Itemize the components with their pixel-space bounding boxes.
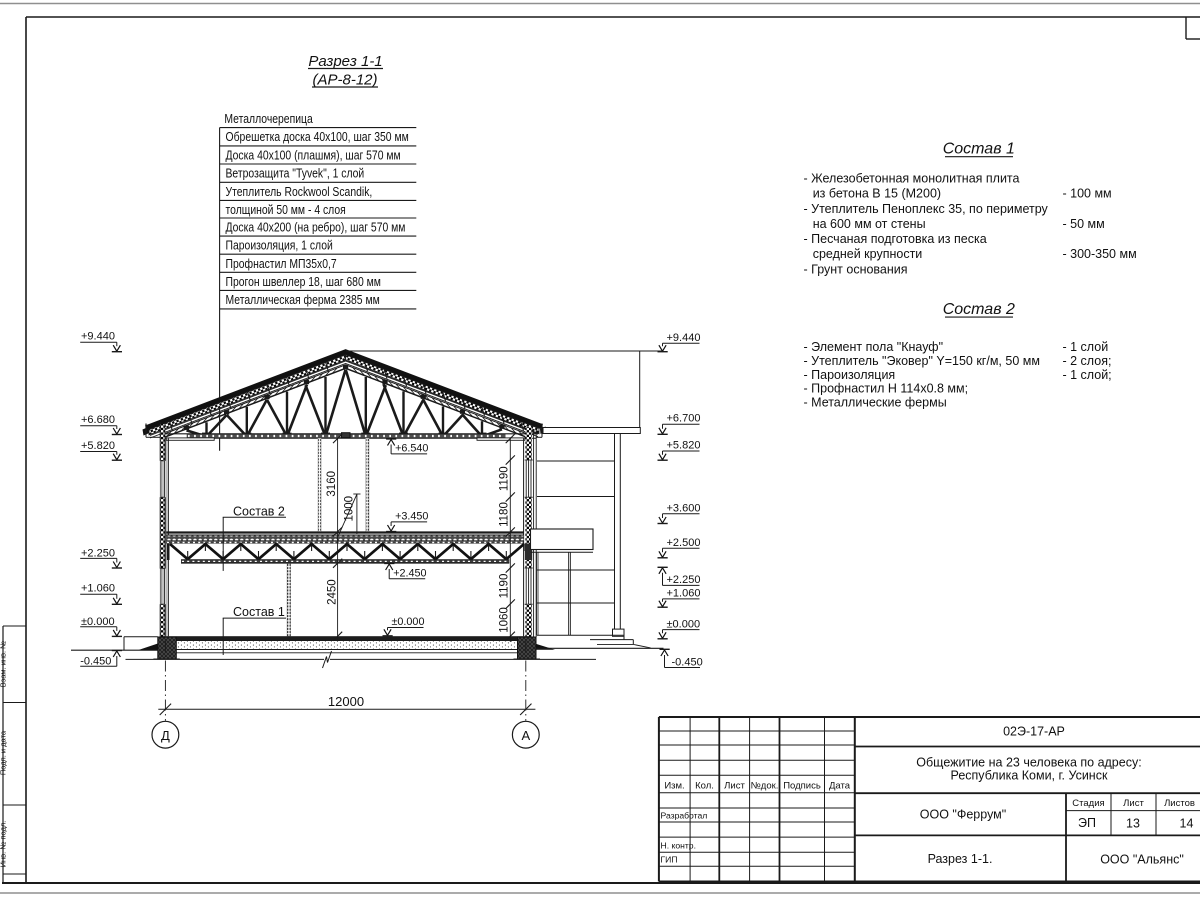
svg-text:Обрешетка доска 40х100, шаг 35: Обрешетка доска 40х100, шаг 350 мм bbox=[226, 130, 409, 144]
svg-text:- Утеплитель "Эковер" Y=150 кг: - Утеплитель "Эковер" Y=150 кг/м, 50 мм bbox=[804, 354, 1040, 368]
svg-text:1000: 1000 bbox=[344, 496, 356, 522]
svg-text:+3.600: +3.600 bbox=[667, 503, 701, 515]
svg-text:±0.000: ±0.000 bbox=[392, 616, 425, 628]
svg-text:ЭП: ЭП bbox=[1078, 816, 1096, 830]
svg-text:+6.680: +6.680 bbox=[81, 414, 115, 426]
svg-text:+1.060: +1.060 bbox=[81, 582, 115, 594]
svg-text:+5.820: +5.820 bbox=[667, 439, 701, 451]
svg-text:±0.000: ±0.000 bbox=[81, 616, 115, 628]
svg-text:из бетона В 15 (М200): из бетона В 15 (М200) bbox=[813, 187, 941, 201]
svg-text:толщиной 50 мм - 4 слоя: толщиной 50 мм - 4 слоя bbox=[226, 203, 346, 217]
svg-text:- Профнастил Н 114х0.8 мм;: - Профнастил Н 114х0.8 мм; bbox=[804, 382, 969, 396]
svg-text:Подпись: Подпись bbox=[783, 780, 821, 791]
svg-text:- Пароизоляция: - Пароизоляция bbox=[804, 368, 896, 382]
svg-text:Ветрозащита "Tyvek", 1 слой: Ветрозащита "Tyvek", 1 слой bbox=[226, 167, 365, 181]
svg-text:Состав 2: Состав 2 bbox=[233, 504, 285, 518]
svg-text:-0.450: -0.450 bbox=[80, 656, 111, 668]
svg-text:+5.820: +5.820 bbox=[81, 440, 115, 452]
svg-text:+9.440: +9.440 bbox=[81, 331, 115, 343]
svg-text:- 300-350 мм: - 300-350 мм bbox=[1063, 247, 1137, 261]
svg-text:+1.060: +1.060 bbox=[667, 588, 701, 600]
svg-text:12000: 12000 bbox=[328, 694, 364, 709]
svg-text:Инв. № подл.: Инв. № подл. bbox=[0, 821, 8, 868]
svg-text:- Утеплитель Пеноплекс 35, по: - Утеплитель Пеноплекс 35, по периметру bbox=[804, 202, 1049, 216]
svg-text:- Элемент пола "Кнауф": - Элемент пола "Кнауф" bbox=[804, 340, 944, 354]
svg-text:1190: 1190 bbox=[499, 466, 511, 491]
svg-text:на 600 мм от стены: на 600 мм от стены bbox=[813, 217, 926, 231]
svg-text:Общежитие на 23 человека по ад: Общежитие на 23 человека по адресу: bbox=[916, 756, 1141, 770]
svg-text:(АР-8-12): (АР-8-12) bbox=[312, 72, 377, 89]
svg-text:- Железобетонная монолитная п: - Железобетонная монолитная плита bbox=[804, 172, 1020, 186]
svg-text:+2.250: +2.250 bbox=[81, 547, 115, 559]
svg-text:±0.000: ±0.000 bbox=[667, 619, 701, 631]
svg-text:02Э-17-АР: 02Э-17-АР bbox=[1003, 725, 1065, 739]
svg-text:ООО "Альянс": ООО "Альянс" bbox=[1100, 853, 1184, 867]
svg-text:- Металлические фермы: - Металлические фермы bbox=[804, 395, 947, 409]
svg-text:Металлическая ферма 2385 мм: Металлическая ферма 2385 мм bbox=[226, 293, 380, 307]
svg-text:+6.540: +6.540 bbox=[395, 443, 428, 455]
svg-text:Состав 1: Состав 1 bbox=[943, 141, 1015, 158]
svg-text:- 50 мм: - 50 мм bbox=[1063, 217, 1105, 231]
svg-text:14: 14 bbox=[1180, 816, 1194, 830]
svg-text:Подп. и дата: Подп. и дата bbox=[0, 730, 8, 775]
svg-text:Кол.: Кол. bbox=[695, 780, 714, 791]
svg-text:- 2 слоя;: - 2 слоя; bbox=[1063, 354, 1112, 368]
svg-text:1190: 1190 bbox=[499, 574, 511, 599]
svg-text:Профнастил МП35х0,7: Профнастил МП35х0,7 bbox=[226, 257, 337, 271]
svg-text:- 1 слой: - 1 слой bbox=[1063, 340, 1109, 354]
svg-text:ООО "Феррум": ООО "Феррум" bbox=[920, 808, 1006, 822]
svg-text:Лист: Лист bbox=[1123, 798, 1144, 809]
svg-text:Республика Коми, г. Усинск: Республика Коми, г. Усинск bbox=[951, 769, 1108, 783]
svg-text:+3.450: +3.450 bbox=[395, 511, 428, 523]
svg-text:1060: 1060 bbox=[499, 607, 511, 633]
svg-text:Н. контр.: Н. контр. bbox=[661, 840, 696, 850]
svg-text:- 100 мм: - 100 мм bbox=[1063, 187, 1112, 201]
svg-text:ГИП: ГИП bbox=[661, 855, 678, 865]
svg-text:+6.700: +6.700 bbox=[667, 413, 701, 425]
svg-text:Металлочерепица: Металлочерепица bbox=[224, 112, 313, 126]
svg-text:№док.: №док. bbox=[751, 780, 779, 791]
svg-text:Листов: Листов bbox=[1164, 798, 1195, 809]
svg-text:1180: 1180 bbox=[499, 502, 511, 527]
svg-text:Дата: Дата bbox=[829, 780, 851, 791]
svg-text:Утеплитель Rockwool Scandik,: Утеплитель Rockwool Scandik, bbox=[226, 185, 373, 199]
svg-text:средней крупности: средней крупности bbox=[813, 247, 923, 261]
svg-text:- Грунт основания: - Грунт основания bbox=[804, 262, 908, 276]
svg-text:Взам. инв. №: Взам. инв. № bbox=[0, 641, 8, 687]
svg-text:+2.450: +2.450 bbox=[393, 568, 426, 580]
svg-text:3160: 3160 bbox=[326, 471, 338, 497]
svg-text:+2.250: +2.250 bbox=[667, 574, 701, 586]
svg-text:+2.500: +2.500 bbox=[667, 537, 701, 549]
svg-text:Доска 40х100 (плашмя), шаг 570: Доска 40х100 (плашмя), шаг 570 мм bbox=[226, 148, 401, 162]
svg-text:13: 13 bbox=[1126, 816, 1140, 830]
svg-text:Состав 1: Состав 1 bbox=[233, 605, 285, 619]
svg-text:Состав 2: Состав 2 bbox=[943, 301, 1015, 318]
svg-text:-0.450: -0.450 bbox=[672, 657, 703, 669]
svg-text:Разрез 1-1.: Разрез 1-1. bbox=[928, 852, 993, 866]
svg-text:Разработал: Разработал bbox=[661, 810, 708, 820]
svg-text:- 1 слой;: - 1 слой; bbox=[1063, 368, 1112, 382]
svg-text:Д: Д bbox=[161, 728, 170, 743]
svg-text:Стадия: Стадия bbox=[1072, 798, 1104, 809]
svg-text:Прогон швеллер 18, шаг 680 мм: Прогон швеллер 18, шаг 680 мм bbox=[226, 275, 381, 289]
svg-text:Доска 40х200 (на ребро), шаг 5: Доска 40х200 (на ребро), шаг 570 мм bbox=[226, 221, 406, 235]
svg-text:Лист: Лист bbox=[724, 780, 745, 791]
svg-text:Разрез 1-1: Разрез 1-1 bbox=[308, 53, 382, 70]
svg-text:2450: 2450 bbox=[327, 579, 339, 605]
svg-text:Изм.: Изм. bbox=[664, 780, 684, 791]
svg-text:Пароизоляция, 1 слой: Пароизоляция, 1 слой bbox=[226, 239, 333, 253]
svg-text:А: А bbox=[521, 728, 530, 743]
svg-text:+9.440: +9.440 bbox=[667, 332, 701, 344]
svg-text:- Песчаная подготовка из песка: - Песчаная подготовка из песка bbox=[804, 232, 987, 246]
